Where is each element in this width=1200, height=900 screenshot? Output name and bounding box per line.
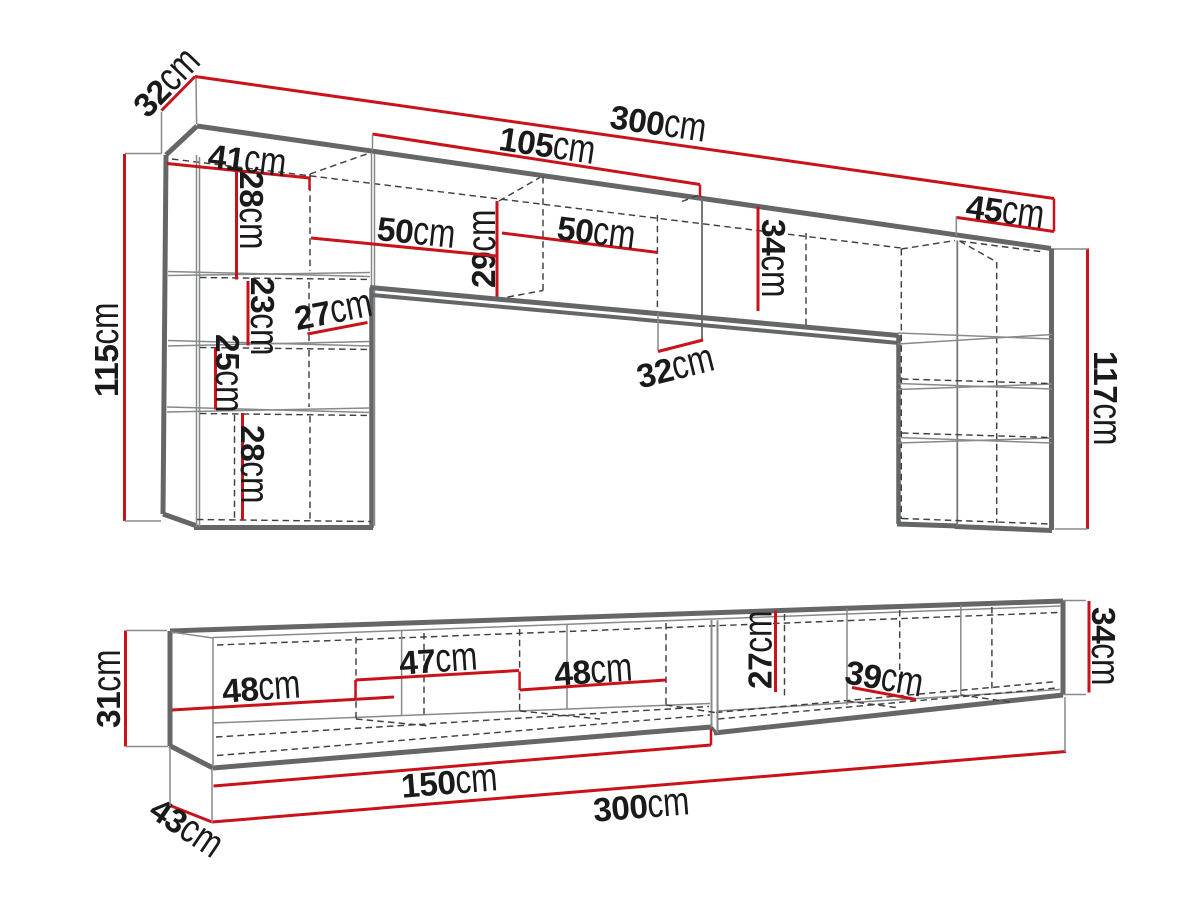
- svg-text:cm: cm: [83, 650, 129, 692]
- svg-text:48: 48: [221, 671, 260, 710]
- svg-text:cm: cm: [753, 255, 799, 297]
- svg-text:28: 28: [233, 425, 270, 461]
- svg-text:115: 115: [89, 345, 126, 398]
- svg-text:31: 31: [91, 692, 128, 728]
- svg-text:cm: cm: [735, 611, 781, 653]
- svg-text:48: 48: [553, 654, 592, 693]
- svg-text:34: 34: [1084, 607, 1121, 644]
- svg-text:cm: cm: [661, 99, 709, 150]
- svg-text:cm: cm: [453, 753, 499, 802]
- svg-text:cm: cm: [589, 644, 634, 693]
- svg-text:cm: cm: [231, 207, 277, 249]
- svg-text:28: 28: [232, 171, 269, 207]
- svg-text:cm: cm: [999, 186, 1047, 237]
- svg-text:cm: cm: [411, 207, 458, 257]
- svg-text:cm: cm: [591, 207, 639, 258]
- svg-text:39: 39: [842, 654, 884, 697]
- svg-text:23: 23: [243, 277, 280, 313]
- svg-text:300: 300: [592, 789, 649, 830]
- svg-text:29: 29: [466, 252, 503, 288]
- svg-text:cm: cm: [458, 210, 504, 252]
- svg-text:cm: cm: [878, 653, 927, 705]
- svg-text:cm: cm: [81, 303, 127, 345]
- svg-text:50: 50: [555, 210, 596, 251]
- svg-text:cm: cm: [645, 777, 691, 826]
- svg-text:50: 50: [375, 211, 415, 252]
- svg-text:cm: cm: [242, 313, 288, 355]
- svg-text:cm: cm: [326, 279, 376, 332]
- svg-text:300: 300: [608, 99, 667, 143]
- svg-text:cm: cm: [207, 370, 253, 412]
- svg-text:150: 150: [400, 765, 457, 806]
- svg-text:cm: cm: [1085, 403, 1131, 445]
- svg-text:47: 47: [398, 643, 437, 682]
- svg-text:27: 27: [743, 653, 780, 689]
- svg-text:cm: cm: [232, 461, 278, 503]
- svg-text:25: 25: [208, 334, 245, 370]
- svg-text:34: 34: [754, 219, 791, 256]
- svg-text:cm: cm: [550, 121, 598, 172]
- svg-text:117: 117: [1086, 351, 1123, 404]
- svg-text:45: 45: [964, 189, 1005, 231]
- svg-text:cm: cm: [434, 633, 479, 682]
- svg-text:cm: cm: [257, 661, 302, 710]
- svg-text:cm: cm: [1083, 643, 1129, 685]
